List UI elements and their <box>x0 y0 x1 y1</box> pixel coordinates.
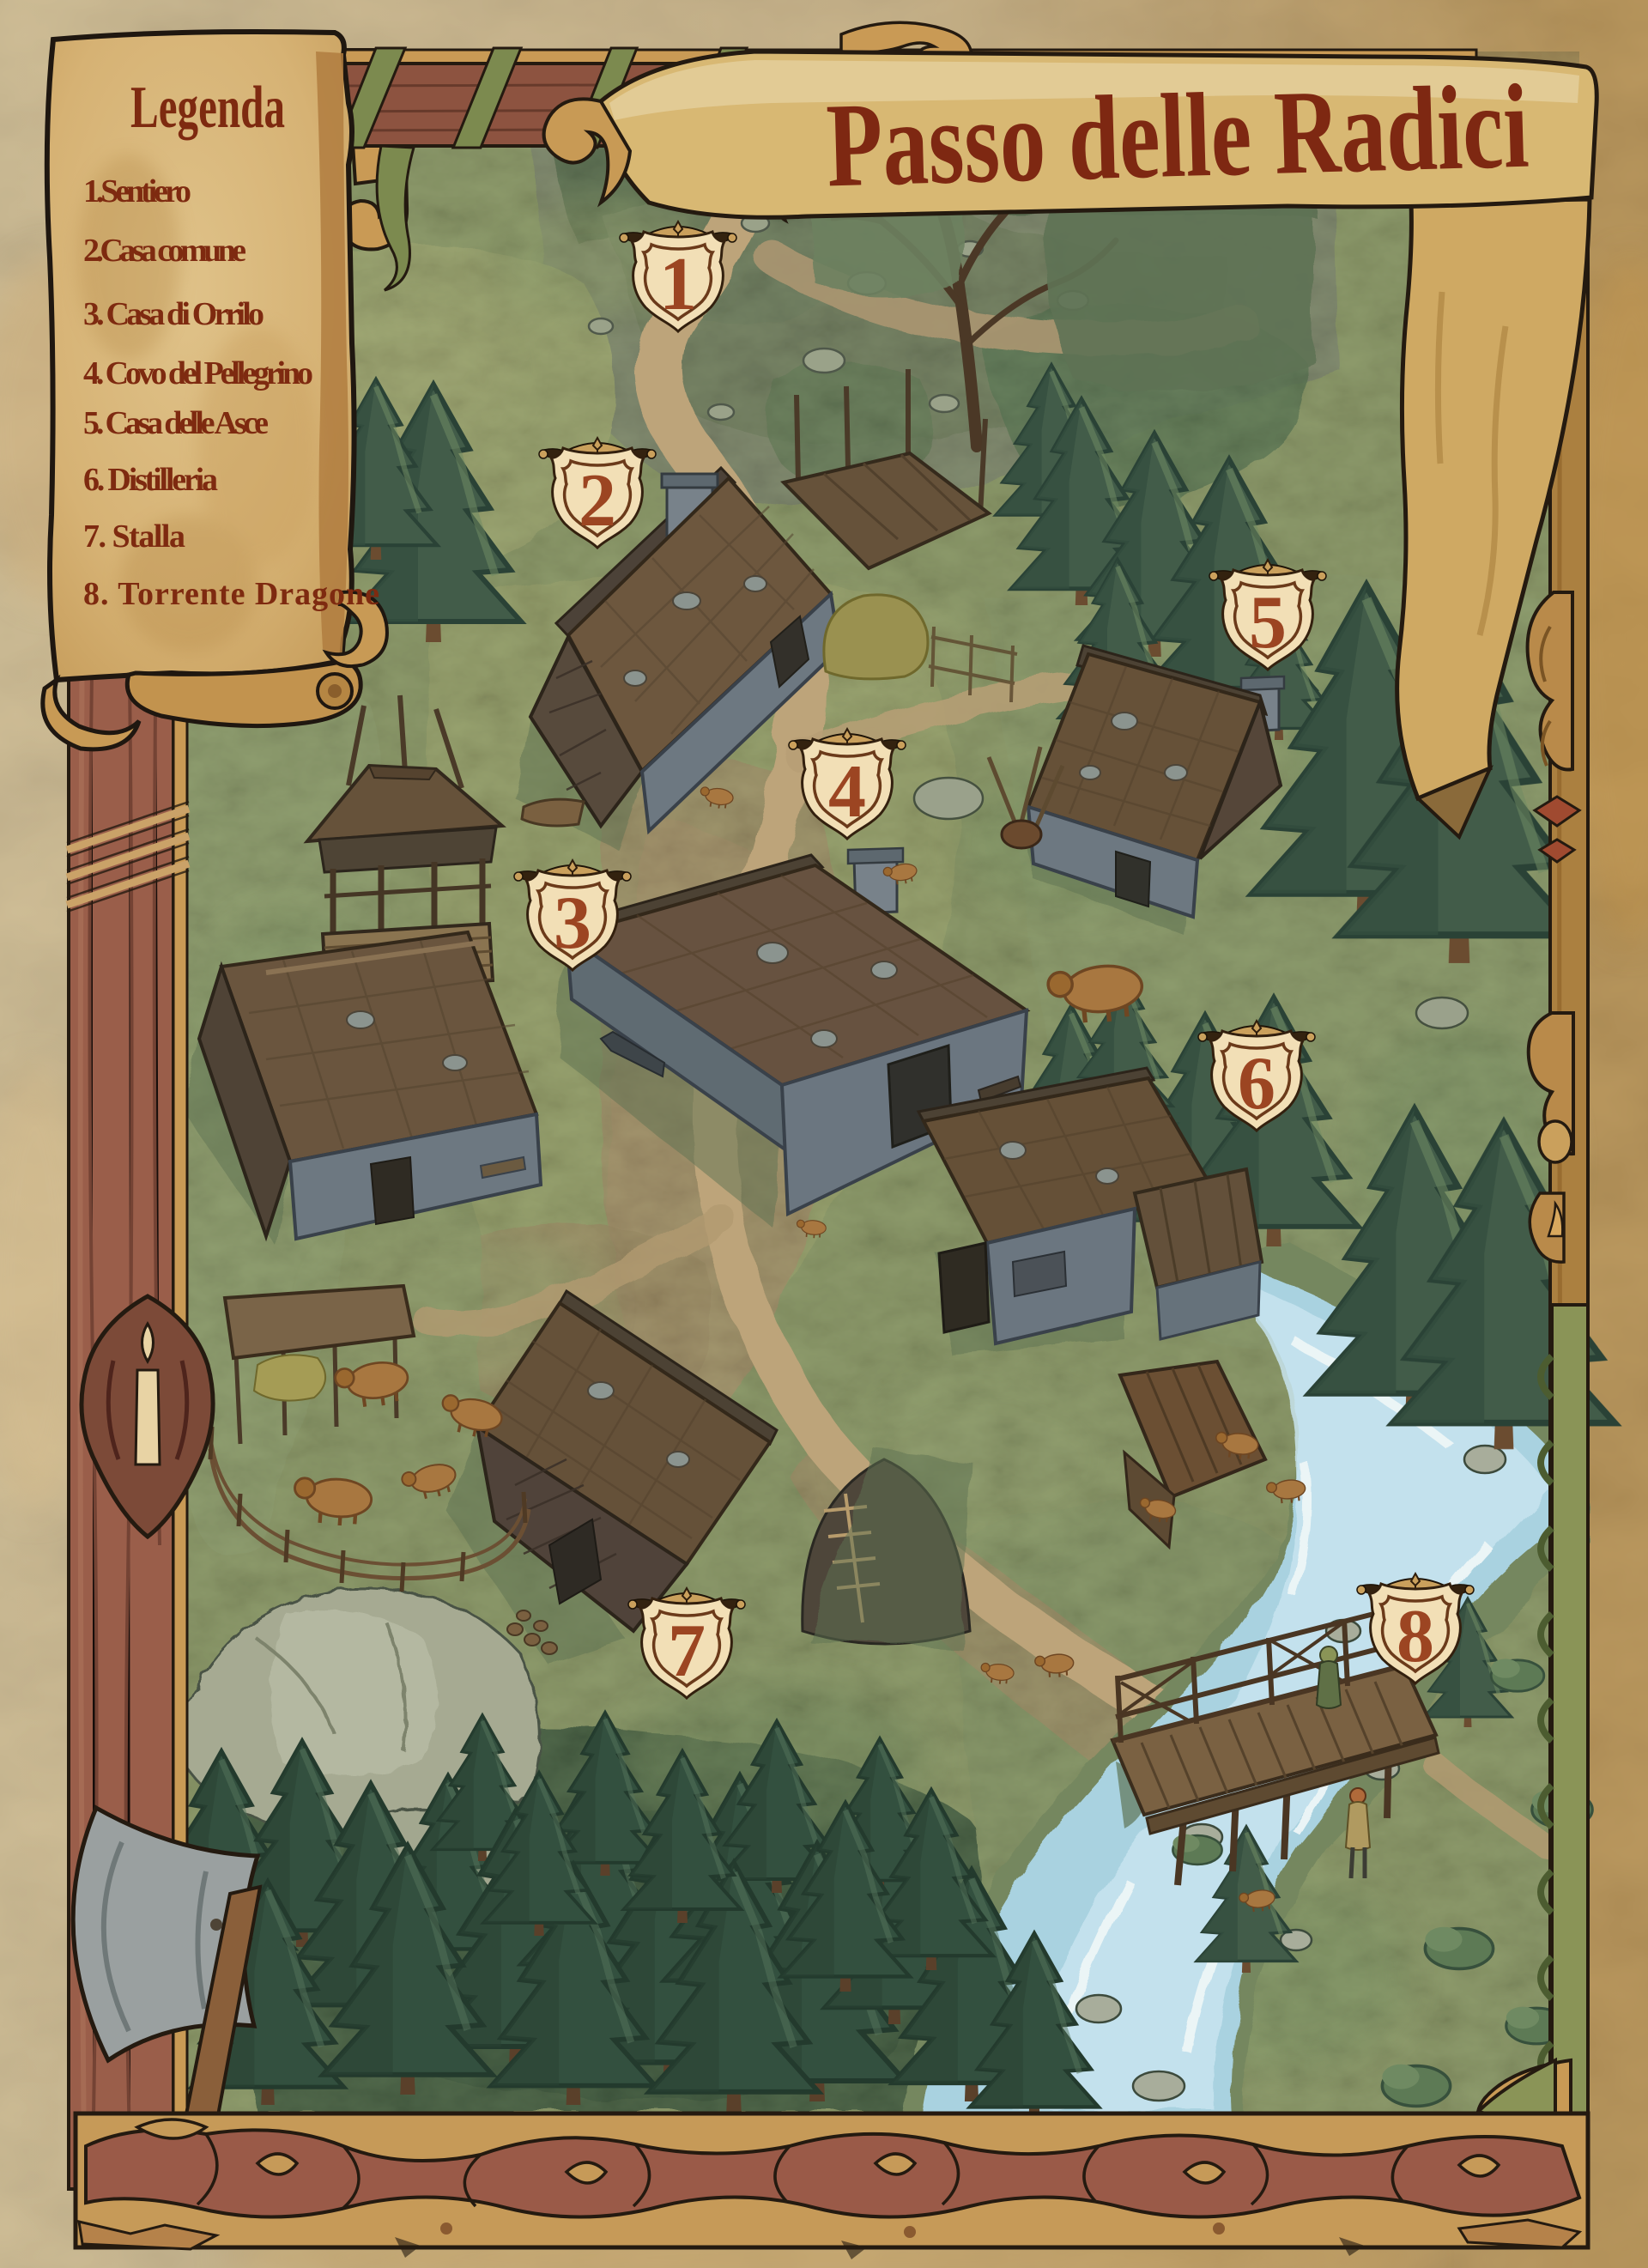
svg-text:1: 1 <box>659 243 697 326</box>
svg-text:Passo delle Radici: Passo delle Radici <box>825 60 1530 213</box>
svg-text:3. Casa di Orrilo: 3. Casa di Orrilo <box>83 296 264 332</box>
svg-text:5: 5 <box>1249 581 1287 664</box>
svg-text:8. Torrente Dragone: 8. Torrente Dragone <box>83 576 379 612</box>
svg-text:2: 2 <box>579 459 616 543</box>
svg-text:Legenda: Legenda <box>130 75 285 141</box>
svg-text:1.Sentiero: 1.Sentiero <box>83 173 191 209</box>
svg-text:6: 6 <box>1238 1042 1275 1125</box>
svg-text:4. Covo del Pellegrino: 4. Covo del Pellegrino <box>83 355 313 391</box>
svg-text:7: 7 <box>668 1610 706 1693</box>
svg-text:3: 3 <box>554 882 591 965</box>
svg-text:6. Distilleria: 6. Distilleria <box>83 462 218 498</box>
svg-text:7. Stalla: 7. Stalla <box>83 518 185 555</box>
svg-text:2.Casa comune: 2.Casa comune <box>83 233 246 269</box>
svg-text:5. Casa delle Asce: 5. Casa delle Asce <box>83 405 269 441</box>
svg-text:4: 4 <box>828 750 866 834</box>
svg-text:8: 8 <box>1397 1595 1434 1678</box>
